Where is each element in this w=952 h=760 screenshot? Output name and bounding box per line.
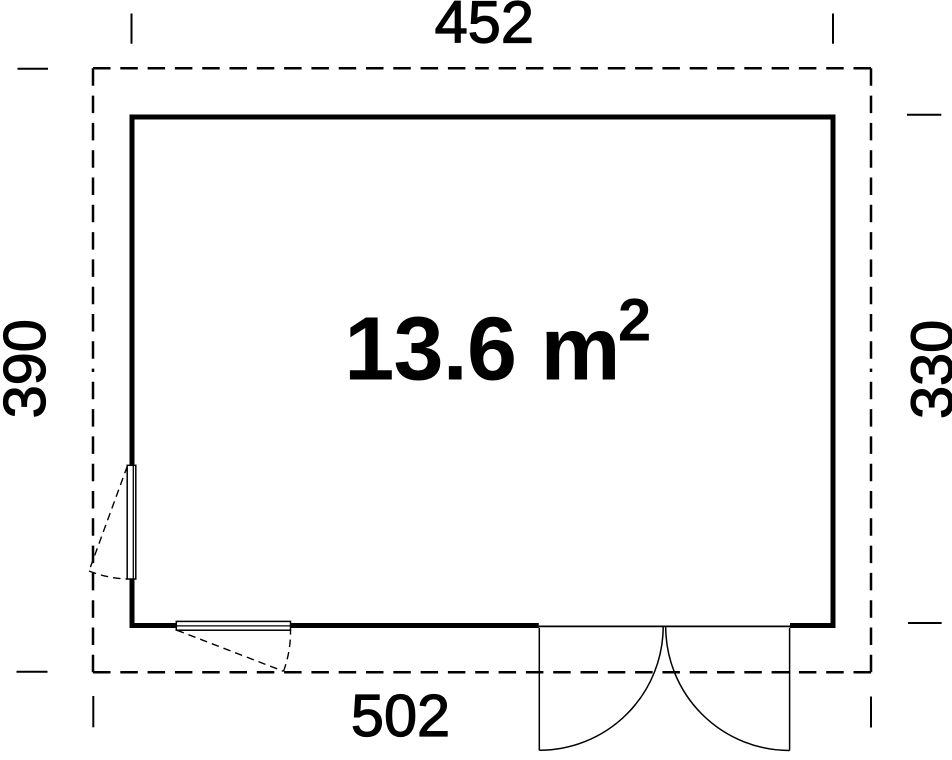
svg-text:13.6 m: 13.6 m	[344, 299, 619, 399]
svg-text:330: 330	[899, 320, 952, 419]
svg-text:502: 502	[351, 682, 450, 749]
svg-text:2: 2	[618, 287, 651, 354]
svg-text:452: 452	[435, 0, 534, 55]
svg-text:390: 390	[0, 319, 58, 418]
